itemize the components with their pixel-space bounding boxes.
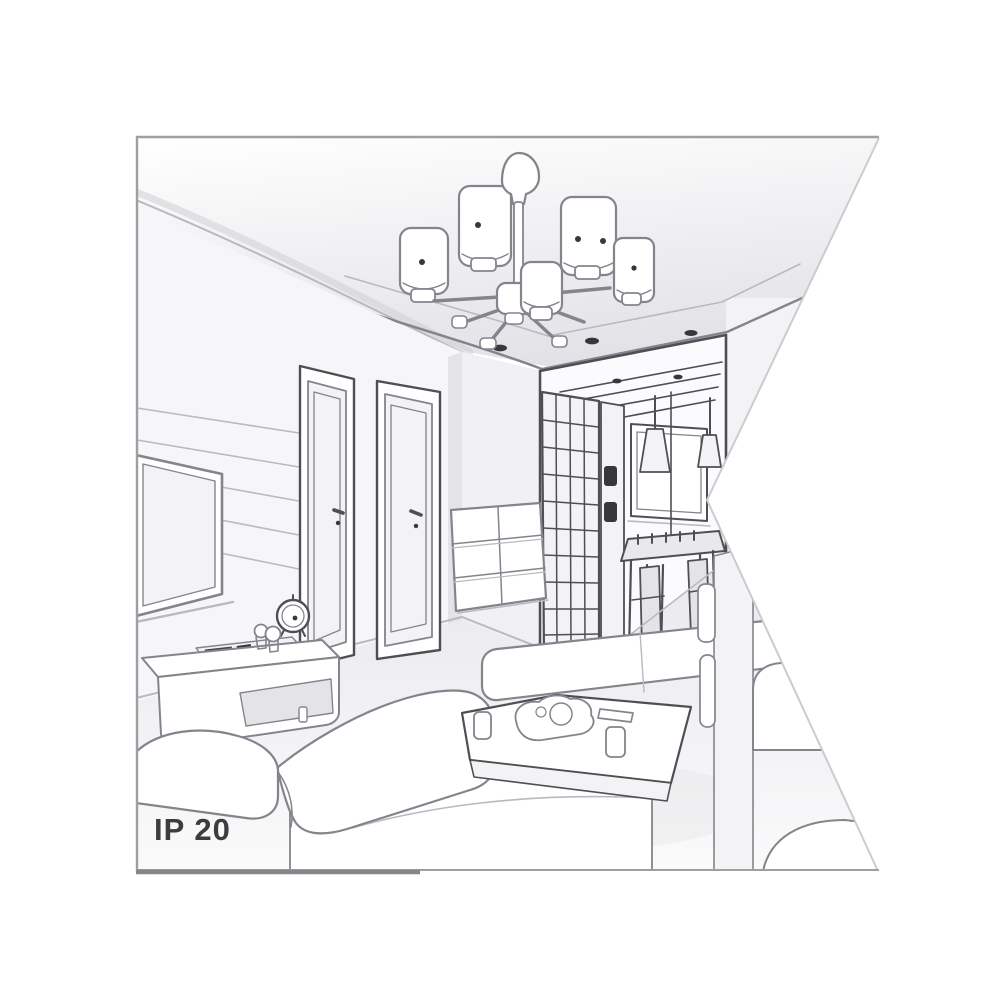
- sofa-armrest: [753, 660, 871, 750]
- arm-socket: [480, 338, 496, 349]
- wardrobe-door-panel: [601, 402, 624, 645]
- ip-rating-label: IP 20: [154, 812, 231, 847]
- cup: [474, 712, 491, 739]
- illustration-canvas: IP 20: [0, 0, 1000, 1000]
- spotlight-icon: [673, 375, 682, 380]
- lamp-shade: [521, 262, 562, 320]
- spotlight-icon: [612, 379, 621, 384]
- door-right: [377, 381, 440, 659]
- spotlight-icon: [685, 330, 698, 336]
- lamp-shade: [459, 186, 511, 271]
- keyhole-icon: [414, 524, 418, 528]
- cabinet-leg: [299, 707, 307, 722]
- arm-socket: [452, 316, 467, 328]
- lamp-shade: [614, 238, 654, 305]
- arm-socket: [552, 336, 567, 347]
- chest-of-drawers: [451, 503, 548, 613]
- lamp-shade: [400, 228, 448, 302]
- sofa-armrest: [136, 731, 278, 819]
- lamp-shade: [561, 197, 616, 279]
- interior-sketch: IP 20: [0, 0, 1000, 1000]
- keyhole-icon: [336, 521, 340, 525]
- spotlight-icon: [585, 338, 599, 345]
- sofa-cushion: [700, 655, 715, 727]
- glass-wardrobe: [542, 392, 599, 658]
- serving-tray: [516, 695, 594, 740]
- sofa-cushion: [698, 584, 715, 642]
- cup: [606, 727, 625, 757]
